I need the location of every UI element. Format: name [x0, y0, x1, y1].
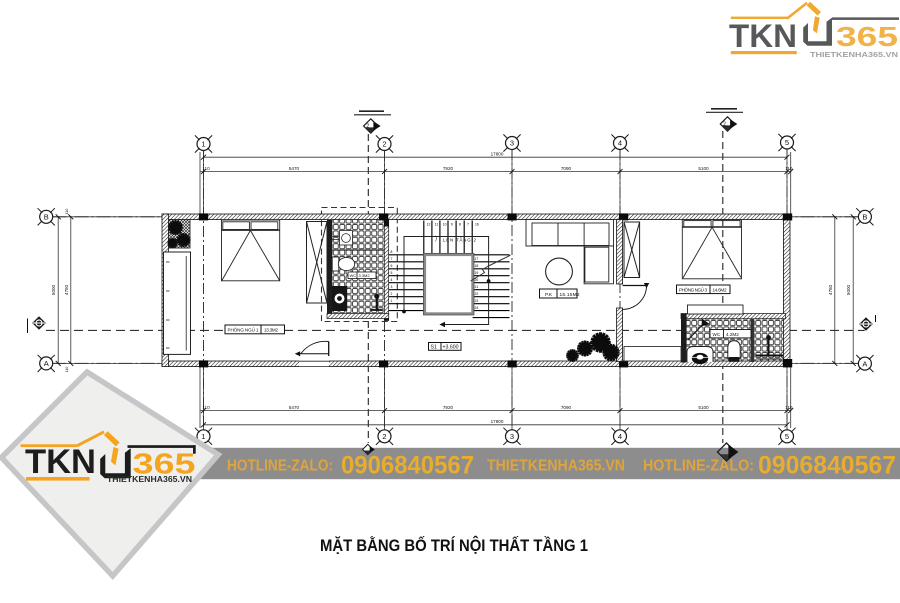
- svg-text:HOTLINE-ZALO:: HOTLINE-ZALO:: [227, 457, 333, 474]
- svg-text:7090: 7090: [561, 166, 572, 171]
- svg-text:24: 24: [475, 306, 479, 310]
- svg-text:110: 110: [785, 166, 793, 171]
- svg-text:4.2M2: 4.2M2: [726, 332, 739, 337]
- svg-text:THIETKENHA365.VN: THIETKENHA365.VN: [107, 475, 192, 484]
- svg-text:5100: 5100: [698, 166, 709, 171]
- svg-text:18: 18: [475, 264, 479, 268]
- svg-text:12: 12: [427, 223, 431, 227]
- svg-text:5470: 5470: [289, 166, 300, 171]
- svg-text:6: 6: [391, 264, 393, 268]
- svg-text:MẶT BẰNG BỐ TRÍ NỘI THẤT TẦNG: MẶT BẰNG BỐ TRÍ NỘI THẤT TẦNG 1: [320, 535, 588, 555]
- svg-text:4750: 4750: [64, 284, 69, 295]
- svg-text:0906840567: 0906840567: [341, 451, 474, 479]
- svg-text:17: 17: [475, 257, 479, 261]
- svg-text:110: 110: [65, 367, 69, 373]
- svg-text:5: 5: [785, 432, 789, 441]
- svg-text:1: 1: [201, 432, 205, 441]
- svg-text:17800: 17800: [491, 419, 504, 424]
- svg-text:3: 3: [510, 432, 514, 441]
- svg-text:5000: 5000: [51, 284, 56, 295]
- svg-text:TKN: TKN: [729, 18, 797, 54]
- svg-text:): ): [435, 236, 437, 242]
- svg-text:21: 21: [475, 285, 479, 289]
- svg-text:19: 19: [475, 271, 479, 275]
- svg-text:B: B: [862, 213, 867, 222]
- svg-text:+3.600: +3.600: [443, 345, 459, 351]
- svg-text:5: 5: [391, 271, 393, 275]
- svg-text:2: 2: [382, 140, 386, 149]
- svg-text:7920: 7920: [443, 166, 454, 171]
- svg-text:5100: 5100: [698, 405, 709, 410]
- svg-text:WC: WC: [713, 332, 721, 337]
- svg-text:PHÒNG NGỦ 1: PHÒNG NGỦ 1: [228, 327, 259, 333]
- svg-text:3: 3: [510, 139, 514, 148]
- svg-text:5470: 5470: [289, 405, 300, 410]
- svg-text:1: 1: [201, 140, 205, 149]
- svg-text:110: 110: [785, 405, 793, 410]
- svg-text:4: 4: [391, 278, 393, 282]
- svg-text:4: 4: [618, 432, 622, 441]
- svg-text:15.15M2: 15.15M2: [560, 292, 580, 298]
- svg-text:HOTLINE-ZALO:: HOTLINE-ZALO:: [643, 457, 754, 474]
- svg-text:THIETKENHA365.VN: THIETKENHA365.VN: [810, 50, 898, 59]
- svg-text:A: A: [862, 359, 867, 368]
- svg-text:2: 2: [391, 292, 393, 296]
- svg-text:LÊN TẦNG 2: LÊN TẦNG 2: [443, 237, 477, 242]
- svg-text:1: 1: [391, 299, 393, 303]
- svg-text:3.3M2: 3.3M2: [359, 273, 371, 278]
- svg-text:7: 7: [391, 257, 393, 261]
- svg-text:110: 110: [65, 209, 69, 215]
- svg-text:10: 10: [443, 223, 447, 227]
- svg-text:11: 11: [435, 223, 439, 227]
- svg-text:TKN: TKN: [25, 443, 96, 481]
- svg-text:B: B: [44, 213, 49, 222]
- svg-text:14.6M2: 14.6M2: [713, 288, 727, 293]
- svg-text:8: 8: [391, 250, 393, 254]
- svg-text:0906840567: 0906840567: [758, 451, 896, 479]
- svg-text:23: 23: [475, 299, 479, 303]
- svg-text:THIETKENHA365.VN: THIETKENHA365.VN: [487, 457, 625, 474]
- svg-text:22: 22: [475, 292, 479, 296]
- svg-text:S1: S1: [431, 345, 437, 351]
- svg-text:A: A: [44, 359, 49, 368]
- svg-text:110: 110: [202, 166, 210, 171]
- svg-text:8: 8: [459, 223, 461, 227]
- svg-text:16: 16: [475, 223, 479, 227]
- svg-text:P.K: P.K: [545, 292, 553, 298]
- svg-text:3: 3: [391, 285, 393, 289]
- svg-text:5000: 5000: [846, 284, 851, 295]
- svg-text:4: 4: [618, 139, 622, 148]
- svg-text:4750: 4750: [828, 284, 833, 295]
- svg-text:7090: 7090: [561, 405, 572, 410]
- svg-text:9: 9: [451, 223, 453, 227]
- svg-text:2: 2: [382, 432, 386, 441]
- svg-text:13.3M2: 13.3M2: [264, 328, 278, 333]
- svg-text:365: 365: [836, 21, 898, 52]
- svg-text:7920: 7920: [443, 405, 454, 410]
- svg-text:110: 110: [202, 405, 210, 410]
- svg-text:17800: 17800: [491, 152, 504, 157]
- svg-text:5: 5: [785, 138, 789, 147]
- svg-text:WC: WC: [350, 273, 357, 278]
- svg-text:PHÒNG NGỦ 3: PHÒNG NGỦ 3: [679, 287, 707, 293]
- svg-text:7: 7: [467, 223, 469, 227]
